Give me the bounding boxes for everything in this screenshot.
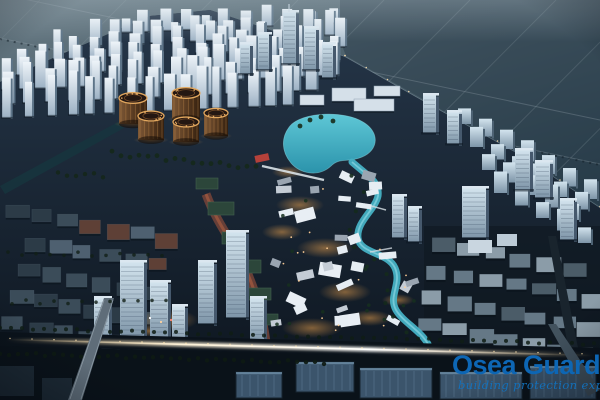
vignette [0,0,600,400]
scene-svg [0,0,600,400]
aerial-city-rendering: Osea Guard building protection expert [0,0,600,400]
